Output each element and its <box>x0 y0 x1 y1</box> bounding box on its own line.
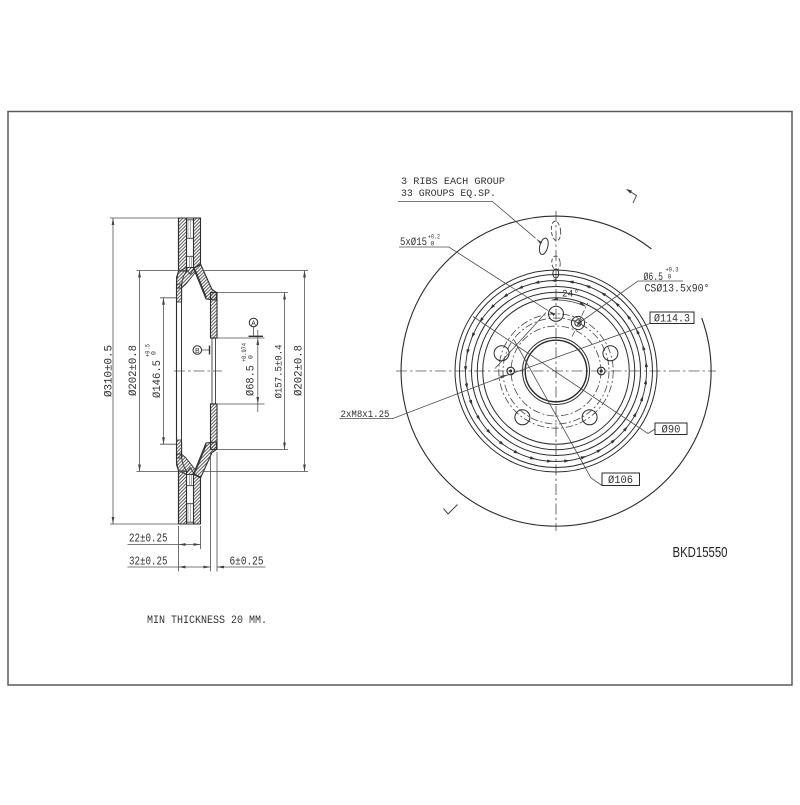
svg-text:+0.3: +0.3 <box>666 267 679 274</box>
svg-text:22±0.25: 22±0.25 <box>129 533 168 546</box>
svg-text:0: 0 <box>668 274 672 281</box>
svg-text:0: 0 <box>151 351 158 355</box>
svg-text:+0.2: +0.2 <box>428 234 440 241</box>
svg-text:Ø310±0.5: Ø310±0.5 <box>104 345 116 397</box>
svg-text:0: 0 <box>431 241 435 248</box>
svg-text:6±0.25: 6±0.25 <box>230 556 264 569</box>
svg-text:2xM8x1.25: 2xM8x1.25 <box>341 409 390 421</box>
svg-text:Ø106: Ø106 <box>608 475 633 487</box>
svg-text:3 RIBS EACH GROUP: 3 RIBS EACH GROUP <box>401 176 505 188</box>
svg-text:Ø157.5±0.4: Ø157.5±0.4 <box>274 345 286 399</box>
svg-text:B: B <box>195 348 200 356</box>
svg-text:32±0.25: 32±0.25 <box>129 556 168 569</box>
svg-text:Ø68.5: Ø68.5 <box>246 365 258 396</box>
svg-text:5xØ15: 5xØ15 <box>400 237 427 249</box>
svg-text:Ø202±0.8: Ø202±0.8 <box>294 345 306 396</box>
svg-text:Ø114.3: Ø114.3 <box>654 313 690 325</box>
svg-text:Ø202±0.8: Ø202±0.8 <box>128 345 140 396</box>
svg-text:Ø146.5: Ø146.5 <box>152 360 164 398</box>
svg-text:33 GROUPS EQ.SP.: 33 GROUPS EQ.SP. <box>401 188 496 200</box>
svg-text:CSØ13.5x90°: CSØ13.5x90° <box>645 284 710 296</box>
svg-text:Ø90: Ø90 <box>662 424 681 436</box>
svg-text:0: 0 <box>248 355 255 359</box>
svg-text:24°: 24° <box>562 289 579 301</box>
svg-text:BKD15550: BKD15550 <box>673 544 728 561</box>
svg-text:Ø6.5: Ø6.5 <box>644 272 664 284</box>
svg-text:MIN THICKNESS 20 MM.: MIN THICKNESS 20 MM. <box>147 615 267 627</box>
